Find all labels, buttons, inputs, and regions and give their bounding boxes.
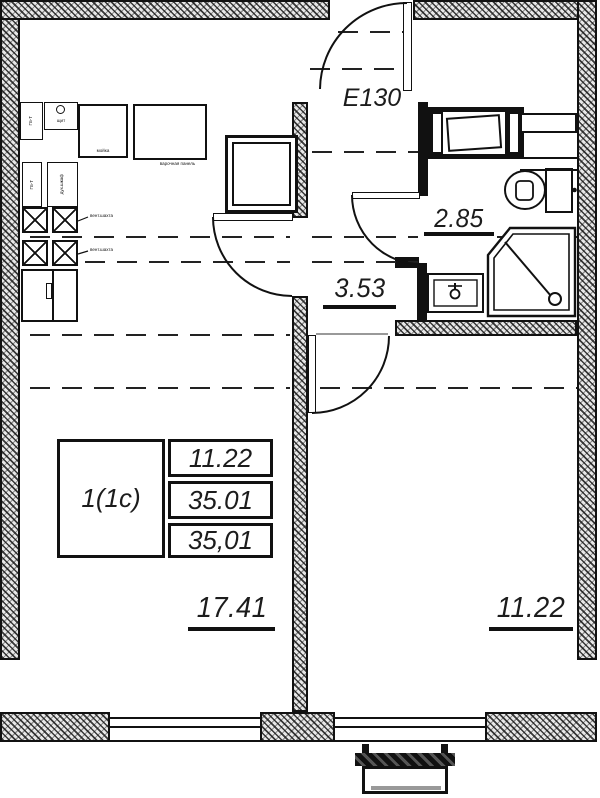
kitchen-appliance-box: Пз-Т — [20, 102, 43, 140]
dashed-line — [312, 151, 418, 153]
wall-pier-bottom-right — [485, 712, 597, 742]
kitchen-appliance-box: Пз-Т — [22, 162, 42, 207]
room-area-hall: 3.53 — [324, 273, 395, 304]
ac-basket — [362, 766, 448, 794]
appliance-label: Пз-Т — [29, 116, 34, 126]
vent-shaft-icon — [22, 207, 48, 233]
window-bedroom — [335, 717, 485, 719]
duct-box-inner — [232, 142, 291, 206]
shelf-line — [520, 157, 577, 159]
area-underline — [188, 627, 275, 631]
washing-machine-icon — [427, 107, 524, 159]
washbasin-icon — [428, 274, 483, 312]
stamp-total-area-full: 35,01 — [168, 523, 273, 558]
wall-pier-bottom-left — [0, 712, 110, 742]
panel-icon — [56, 105, 65, 114]
window-living — [110, 717, 260, 719]
bedroom-door-leaf — [308, 335, 316, 413]
leader-line — [78, 251, 88, 254]
vent-label: вент.шахта — [90, 213, 132, 218]
appliance-label: Пз-Т — [30, 180, 35, 190]
dashed-line — [320, 387, 577, 389]
basket-hatched-rail — [355, 753, 455, 766]
stamp-total-area: 35.01 — [168, 481, 273, 519]
electric-panel-box: щит — [44, 102, 78, 130]
area-underline — [323, 305, 396, 309]
sink-label: мойка — [80, 148, 126, 153]
bathroom-shelf — [520, 113, 577, 133]
entry-door-arc — [320, 3, 407, 89]
shelf-line — [520, 169, 577, 171]
washing-machine-detail — [510, 114, 518, 152]
leader-line — [78, 217, 88, 221]
basket-inner-line — [371, 786, 441, 790]
duct-box — [225, 135, 298, 213]
area-underline — [424, 232, 494, 236]
living-door-leaf — [213, 213, 293, 221]
dashed-line — [85, 261, 290, 263]
wall-left — [0, 0, 20, 660]
stamp-unit-type: 1(1с) — [57, 439, 165, 558]
room-area-living: 17.41 — [190, 592, 275, 625]
wall-top-left — [0, 0, 330, 20]
dashed-line — [338, 31, 404, 33]
living-door-arc — [213, 217, 292, 296]
hob-label: варочная панель — [130, 161, 225, 166]
bedroom-door-threshold — [316, 333, 388, 335]
dashed-line — [310, 68, 405, 70]
facade-baseline — [0, 740, 597, 742]
kitchen-sink: мойка — [78, 104, 128, 158]
vent-shaft-icon — [22, 240, 48, 266]
bathroom-door-leaf — [352, 192, 420, 199]
floor-plan: Пз-Т щит мойка варочная панель Пз-Т дух.… — [0, 0, 600, 798]
dashed-line — [312, 261, 418, 263]
window-bedroom-line2 — [335, 726, 485, 728]
dashed-line — [312, 236, 418, 238]
bedroom-door-arc — [312, 336, 389, 413]
wall-top-right — [413, 0, 597, 20]
dashed-line — [497, 236, 577, 238]
cabinet-handle — [46, 283, 52, 299]
entry-door-number: Е130 — [336, 84, 408, 114]
toilet-icon — [505, 169, 577, 212]
room-area-bedroom: 11.22 — [490, 592, 573, 625]
bathroom-door-arc — [352, 195, 421, 264]
panel-label: щит — [45, 118, 77, 123]
wall-pier-bottom-center — [260, 712, 335, 742]
kitchen-hob — [133, 104, 207, 160]
stamp-living-area: 11.22 — [168, 439, 273, 477]
room-area-bathroom: 2.85 — [425, 203, 493, 234]
washing-machine-lid — [446, 114, 502, 152]
washing-machine-detail — [433, 114, 441, 152]
wall-right — [577, 0, 597, 660]
wall-interior-lower — [292, 296, 308, 712]
wall-bath-bottom — [395, 320, 577, 336]
area-underline — [489, 627, 573, 631]
dashed-line — [30, 387, 290, 389]
shower-icon — [488, 228, 575, 316]
entry-door-leaf — [403, 2, 412, 91]
cabinet-divider — [52, 271, 54, 320]
vent-label: вент.шахта — [90, 247, 132, 252]
dashed-line — [30, 334, 290, 336]
appliance-label: дух.шкаф — [60, 174, 65, 194]
window-living-line2 — [110, 726, 260, 728]
vent-shaft-icon — [52, 207, 78, 233]
vent-shaft-icon — [52, 240, 78, 266]
kitchen-appliance-box: дух.шкаф — [47, 162, 78, 207]
dashed-line — [30, 236, 290, 238]
kitchen-cabinet — [21, 269, 78, 322]
